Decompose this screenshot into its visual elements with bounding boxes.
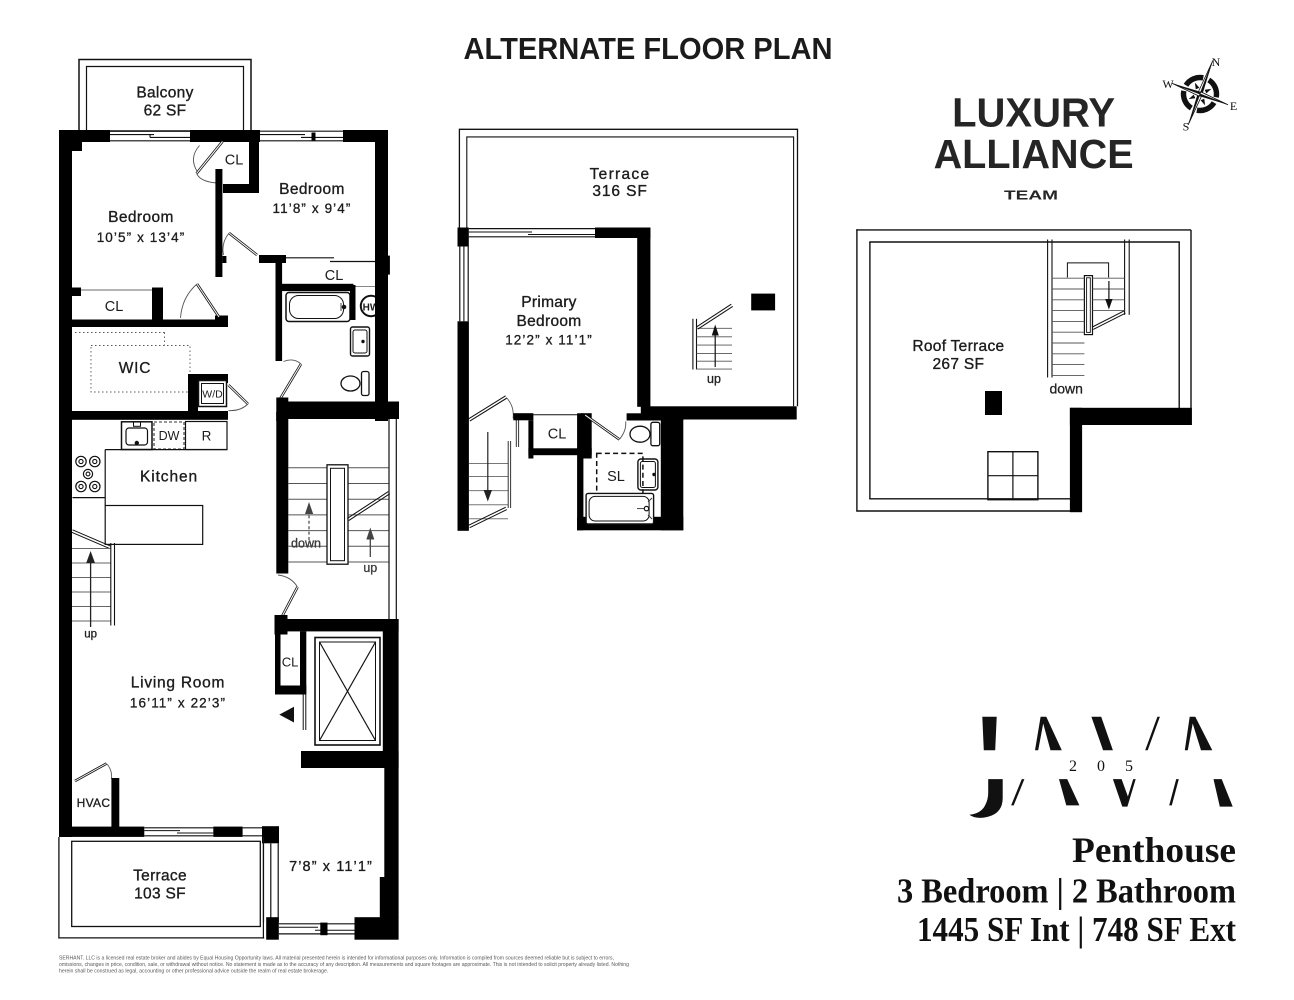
svg-text:Terrace: Terrace — [133, 868, 187, 885]
svg-text:12’2” x 11’1”: 12’2” x 11’1” — [505, 333, 593, 348]
svg-text:Balcony: Balcony — [136, 85, 193, 102]
svg-text:Penthouse: Penthouse — [1072, 830, 1236, 870]
svg-text:ALLIANCE: ALLIANCE — [934, 131, 1134, 177]
svg-text:W/D: W/D — [202, 389, 223, 401]
svg-text:Living Room: Living Room — [131, 675, 225, 692]
svg-text:CL: CL — [548, 427, 567, 443]
svg-text:down: down — [1049, 381, 1082, 397]
svg-text:0: 0 — [1097, 758, 1105, 775]
svg-text:SERHANT. LLC is a licensed rea: SERHANT. LLC is a licensed real estate b… — [59, 955, 614, 961]
svg-text:Primary: Primary — [521, 294, 577, 311]
svg-text:Terrace: Terrace — [590, 166, 651, 183]
svg-text:ALTERNATE FLOOR PLAN: ALTERNATE FLOOR PLAN — [464, 31, 833, 66]
svg-text:2: 2 — [1069, 758, 1077, 775]
svg-text:WIC: WIC — [119, 360, 152, 377]
svg-text:103 SF: 103 SF — [134, 886, 186, 903]
svg-text:1445 SF Int | 748 SF Ext: 1445 SF Int | 748 SF Ext — [917, 910, 1236, 949]
svg-text:267 SF: 267 SF — [933, 356, 985, 373]
svg-text:LUXURY: LUXURY — [952, 90, 1115, 136]
svg-text:Roof Terrace: Roof Terrace — [912, 338, 1004, 355]
svg-text:11’8” x 9’4”: 11’8” x 9’4” — [273, 201, 352, 216]
svg-text:E: E — [1230, 99, 1237, 113]
svg-text:Bedroom: Bedroom — [108, 209, 174, 226]
svg-text:Bedroom: Bedroom — [279, 181, 345, 198]
svg-text:CL: CL — [282, 655, 299, 670]
svg-text:down: down — [291, 537, 321, 551]
svg-text:N: N — [1212, 55, 1221, 69]
svg-text:herein shall be construed as l: herein shall be construed as legal, acco… — [59, 968, 328, 974]
svg-text:7’8” x 11’1”: 7’8” x 11’1” — [289, 859, 373, 875]
svg-text:Bedroom: Bedroom — [517, 313, 582, 330]
svg-text:62 SF: 62 SF — [144, 103, 187, 120]
svg-text:TEAM: TEAM — [1004, 188, 1058, 203]
svg-text:316 SF: 316 SF — [592, 183, 647, 200]
svg-text:SL: SL — [607, 469, 625, 485]
svg-text:omissions, changes in price, c: omissions, changes in price, condition, … — [59, 962, 629, 968]
svg-text:DW: DW — [159, 429, 180, 443]
svg-text:S: S — [1183, 120, 1190, 134]
svg-text:Kitchen: Kitchen — [140, 469, 198, 486]
svg-text:up: up — [707, 372, 721, 386]
svg-text:up: up — [84, 629, 97, 641]
svg-text:CL: CL — [225, 153, 244, 169]
svg-text:CL: CL — [325, 268, 344, 284]
svg-text:CL: CL — [105, 299, 124, 315]
svg-text:3 Bedroom | 2 Bathroom: 3 Bedroom | 2 Bathroom — [897, 872, 1236, 911]
svg-text:5: 5 — [1125, 758, 1133, 775]
svg-text:W: W — [1162, 77, 1174, 91]
svg-text:up: up — [363, 561, 377, 575]
svg-text:10’5” x 13’4”: 10’5” x 13’4” — [97, 230, 186, 245]
svg-text:R: R — [202, 429, 212, 444]
svg-text:16’11” x 22’3”: 16’11” x 22’3” — [130, 696, 226, 711]
svg-text:HVAC: HVAC — [77, 796, 111, 810]
